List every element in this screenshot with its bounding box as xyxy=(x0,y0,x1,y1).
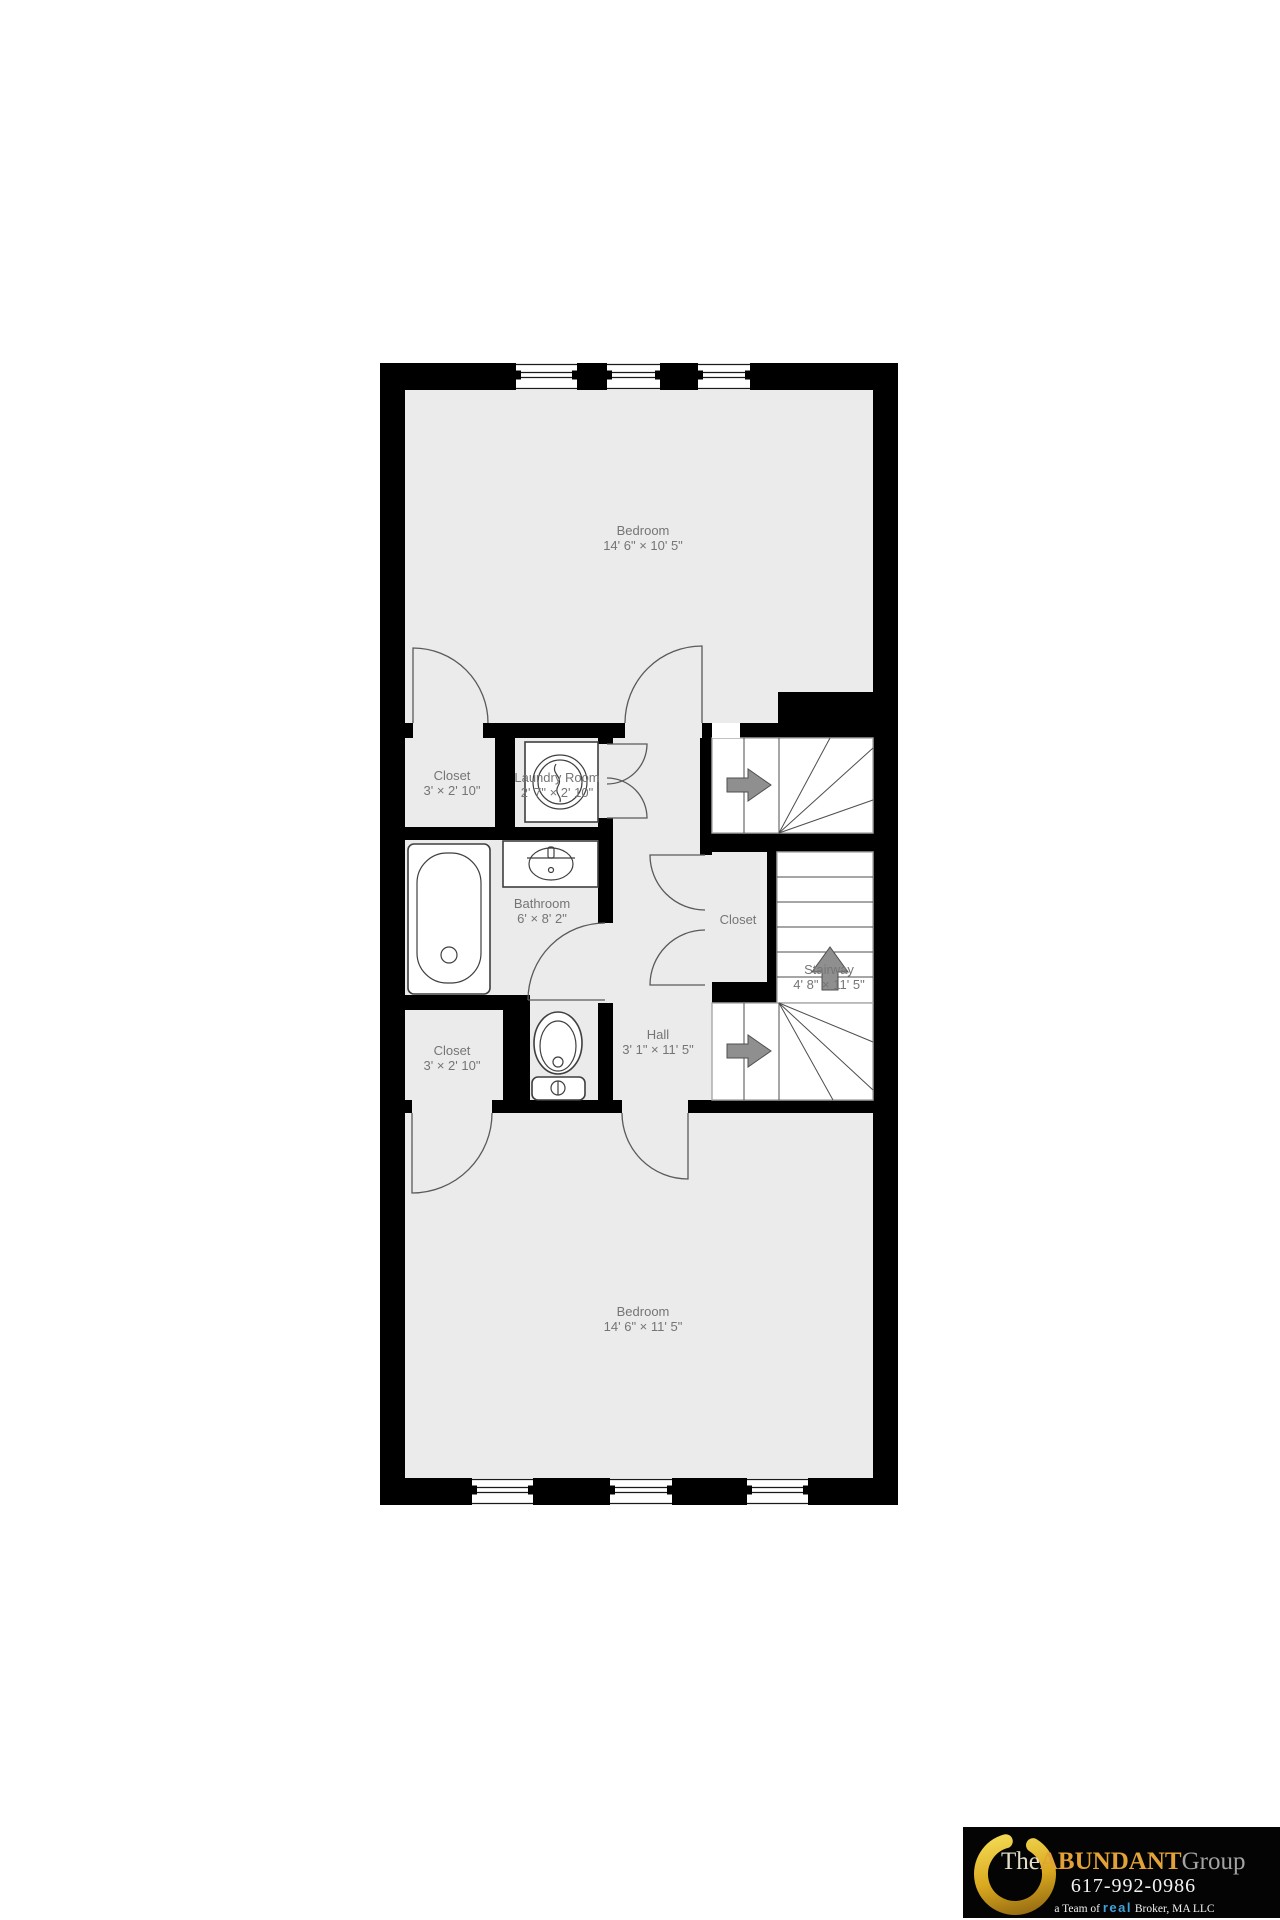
team-line: a Team of real Broker, MA LLC xyxy=(963,1900,1280,1915)
window xyxy=(610,1478,672,1505)
windows-bottom xyxy=(472,1478,808,1505)
room-label: Closet xyxy=(434,1043,471,1058)
room-label: Closet xyxy=(720,912,757,927)
room-label: Bedroom xyxy=(617,1304,670,1319)
room-dims: 14' 6" × 11' 5" xyxy=(604,1319,683,1334)
page: Bedroom 14' 6" × 10' 5" Closet 3' × 2' 1… xyxy=(0,0,1280,1920)
room-label: Hall xyxy=(647,1027,670,1042)
window xyxy=(472,1478,533,1505)
room-dims: 14' 6" × 10' 5" xyxy=(603,538,683,553)
room-dims: 3' 1" × 11' 5" xyxy=(622,1042,694,1057)
room-dims: 2' 7" × 2' 10" xyxy=(521,785,594,800)
room-dims: 6' × 8' 2" xyxy=(517,911,567,926)
room-label: Bedroom xyxy=(617,523,670,538)
window xyxy=(698,363,750,390)
windows-top xyxy=(516,363,750,390)
window xyxy=(516,363,577,390)
toilet-icon xyxy=(532,1012,585,1100)
brokerage-logo: TheABUNDANTGroup 617-992-0986 a Team of … xyxy=(963,1827,1280,1918)
room-dims: 4' 8" × 11' 5" xyxy=(793,977,865,992)
window xyxy=(747,1478,808,1505)
room-label: Laundry Room xyxy=(514,770,599,785)
window xyxy=(607,363,660,390)
room-dims: 3' × 2' 10" xyxy=(424,783,481,798)
real-broker-logo: real xyxy=(1103,1900,1132,1915)
sink-icon xyxy=(503,841,598,887)
room-label: Bathroom xyxy=(514,896,570,911)
room-label: Stairway xyxy=(804,962,854,977)
phone-number: 617-992-0986 xyxy=(963,1875,1280,1898)
brand-group: Group xyxy=(1182,1848,1246,1875)
room-dims: 3' × 2' 10" xyxy=(424,1058,481,1073)
room-label: Closet xyxy=(434,768,471,783)
brand-name: TheABUNDANTGroup xyxy=(1001,1849,1245,1874)
brand-the: The xyxy=(1001,1848,1040,1875)
floor-plan: Bedroom 14' 6" × 10' 5" Closet 3' × 2' 1… xyxy=(0,0,1280,1920)
brand-abundant: ABUNDANT xyxy=(1040,1848,1182,1875)
bathtub-icon xyxy=(408,844,490,994)
team-prefix: a Team of xyxy=(1054,1903,1100,1915)
team-suffix: Broker, MA LLC xyxy=(1135,1903,1215,1915)
